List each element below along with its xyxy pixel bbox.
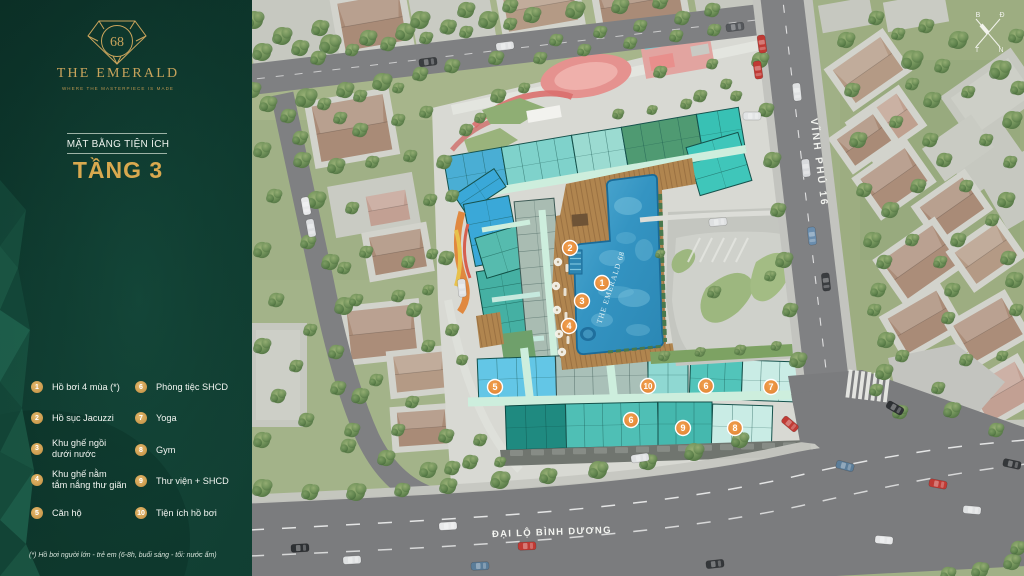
svg-text:2: 2 — [567, 243, 572, 253]
svg-text:Đ: Đ — [999, 12, 1004, 19]
svg-text:B: B — [976, 12, 981, 19]
svg-text:T: T — [975, 47, 980, 54]
svg-text:5: 5 — [492, 382, 497, 392]
svg-text:6: 6 — [628, 415, 633, 425]
svg-text:8: 8 — [732, 423, 737, 433]
svg-text:9: 9 — [680, 423, 685, 433]
svg-text:7: 7 — [768, 382, 773, 392]
svg-text:68: 68 — [110, 35, 124, 50]
svg-text:10: 10 — [644, 382, 653, 391]
svg-text:3: 3 — [579, 296, 584, 306]
svg-text:1: 1 — [599, 278, 604, 288]
svg-text:4: 4 — [566, 321, 571, 331]
svg-text:N: N — [998, 47, 1003, 54]
svg-text:6: 6 — [703, 381, 708, 391]
